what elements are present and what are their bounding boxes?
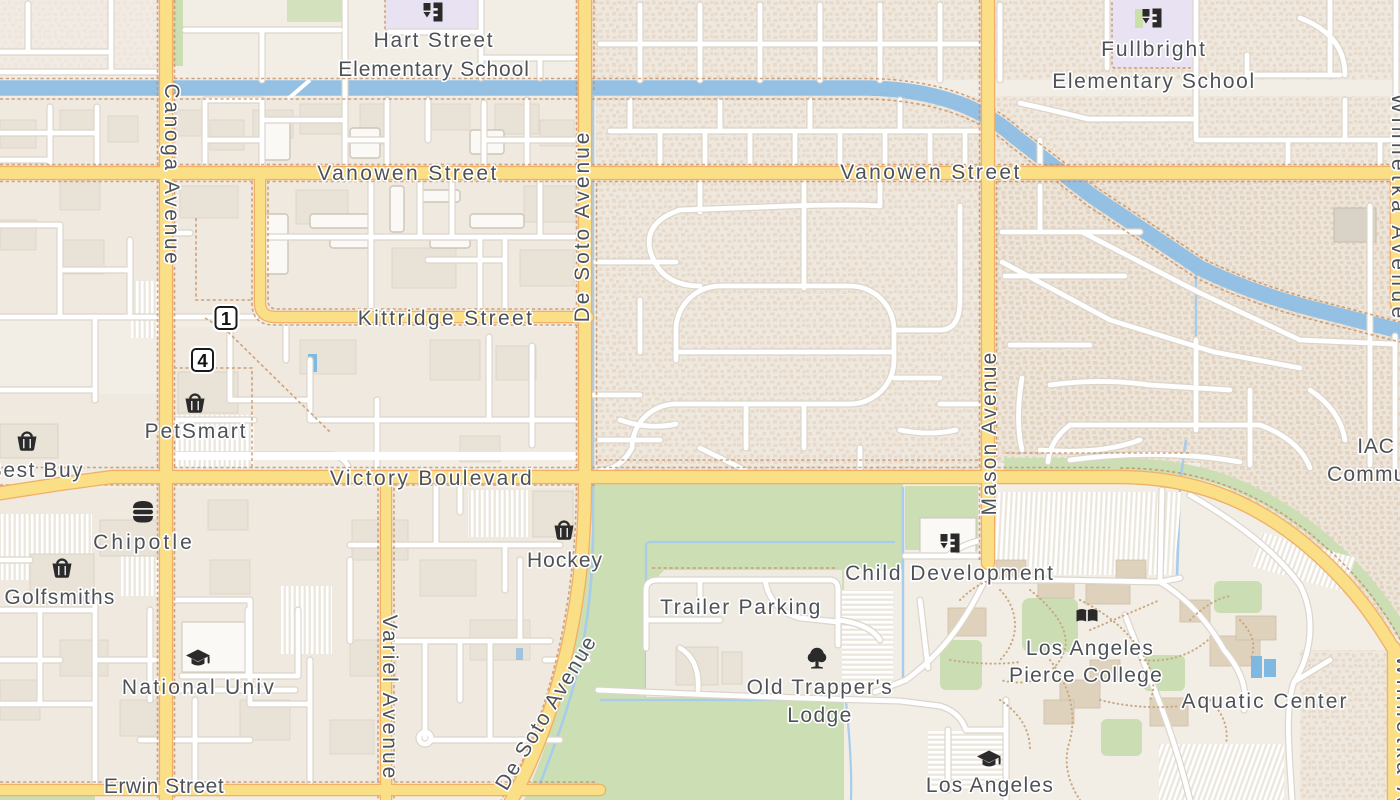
svg-text:Mason Avenue: Mason Avenue [978, 351, 1001, 516]
svg-text:Los Angeles: Los Angeles [1026, 637, 1154, 660]
svg-text:Vanowen Street: Vanowen Street [840, 161, 1021, 184]
svg-text:Lodge: Lodge [787, 704, 852, 727]
svg-text:Best Buy: Best Buy [0, 459, 84, 482]
svg-text:Golfsmiths: Golfsmiths [4, 586, 115, 609]
svg-text:Aquatic Center: Aquatic Center [1182, 690, 1349, 713]
svg-text:National Univ: National Univ [122, 676, 276, 699]
svg-text:Elementary School: Elementary School [1052, 70, 1255, 93]
svg-text:1: 1 [221, 308, 231, 329]
svg-text:Child Development: Child Development [845, 562, 1055, 585]
svg-text:IAC: IAC [1357, 435, 1394, 458]
svg-text:4: 4 [197, 350, 208, 371]
svg-text:Chipotle: Chipotle [93, 531, 195, 554]
svg-text:Variel Avenue: Variel Avenue [378, 615, 401, 782]
svg-text:Kittridge Street: Kittridge Street [358, 307, 535, 330]
svg-text:Hockey: Hockey [527, 549, 603, 572]
svg-text:Vanowen Street: Vanowen Street [317, 162, 498, 185]
svg-text:PetSmart: PetSmart [145, 420, 248, 443]
svg-text:Trailer Parking: Trailer Parking [660, 596, 822, 619]
svg-text:Victory Boulevard: Victory Boulevard [330, 467, 534, 490]
svg-text:Elementary School: Elementary School [338, 58, 530, 81]
svg-text:Winnetka Avenue: Winnetka Avenue [1392, 655, 1400, 800]
svg-text:Hart Street: Hart Street [374, 29, 495, 52]
svg-text:Canoga Avenue: Canoga Avenue [160, 84, 183, 267]
svg-text:Winnetka Avenue: Winnetka Avenue [1387, 93, 1400, 322]
svg-text:Old Trapper's: Old Trapper's [747, 676, 894, 699]
svg-text:Los Angeles: Los Angeles [926, 774, 1054, 797]
svg-text:Pierce College: Pierce College [1009, 664, 1163, 687]
svg-text:Community Colleg: Community Colleg [1327, 463, 1400, 486]
svg-text:Erwin Street: Erwin Street [104, 775, 224, 798]
svg-text:Fullbright: Fullbright [1101, 38, 1207, 61]
svg-text:De Soto Avenue: De Soto Avenue [571, 130, 594, 323]
